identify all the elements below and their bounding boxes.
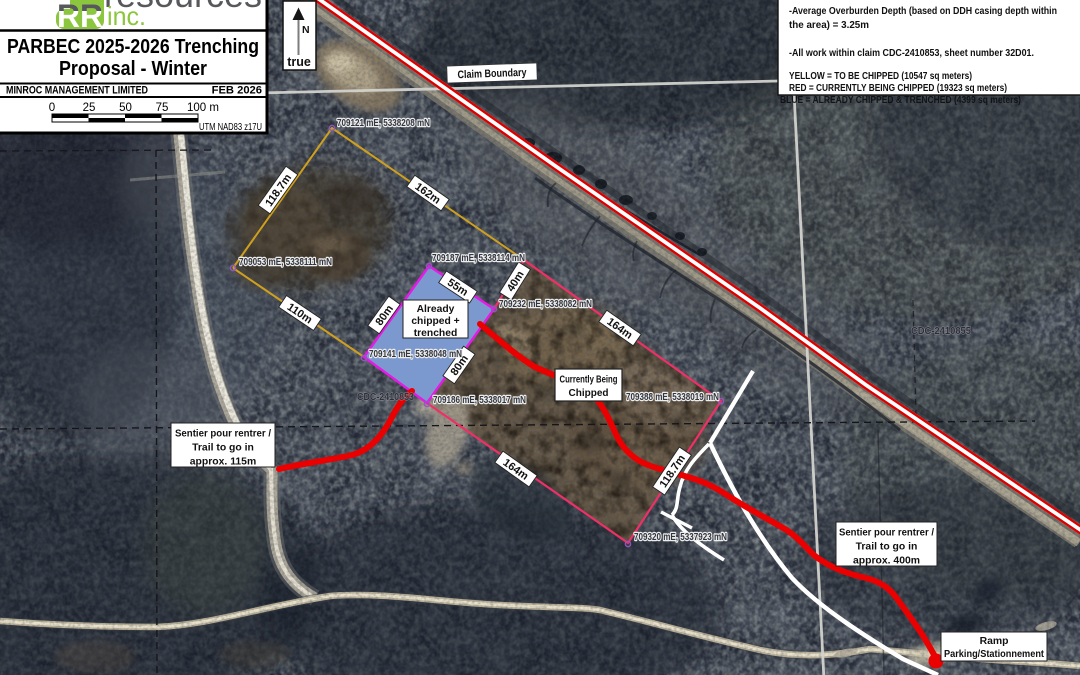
svg-text:CDC-2410855: CDC-2410855 (911, 325, 971, 337)
svg-text:25: 25 (83, 102, 96, 114)
svg-text:-All work within claim CDC-241: -All work within claim CDC-2410853, shee… (789, 48, 1034, 59)
svg-text:Sentier pour rentrer /: Sentier pour rentrer / (839, 528, 934, 539)
svg-text:50: 50 (119, 102, 132, 114)
svg-text:Proposal - Winter: Proposal - Winter (59, 57, 207, 80)
svg-text:N: N (302, 24, 310, 36)
svg-text:the area) = 3.25m: the area) = 3.25m (789, 20, 869, 31)
svg-text:CDC-2410853: CDC-2410853 (357, 391, 414, 403)
svg-text:Sentier pour rentrer /: Sentier pour rentrer / (175, 429, 271, 440)
svg-text:inc.: inc. (107, 1, 146, 31)
svg-text:Already: Already (417, 304, 455, 315)
svg-text:FEB 2026: FEB 2026 (212, 85, 262, 97)
svg-text:Trail to go in: Trail to go in (192, 443, 254, 454)
svg-text:Chipped: Chipped (569, 388, 609, 399)
svg-text:approx. 115m: approx. 115m (190, 457, 256, 468)
svg-text:UTM NAD83 z17U: UTM NAD83 z17U (199, 122, 262, 133)
svg-text:709186 mE, 5338017 mN: 709186 mE, 5338017 mN (433, 395, 526, 406)
svg-text:true: true (287, 55, 311, 69)
svg-text:0: 0 (49, 102, 55, 114)
svg-text:Trail to go in: Trail to go in (856, 542, 918, 553)
svg-text:709187 mE, 5338114 mN: 709187 mE, 5338114 mN (432, 253, 525, 264)
svg-text:709053 mE, 5338111 mN: 709053 mE, 5338111 mN (239, 257, 332, 268)
svg-text:Ramp: Ramp (980, 636, 1009, 647)
svg-text:YELLOW = TO BE CHIPPED (10547: YELLOW = TO BE CHIPPED (10547 sq meters) (789, 71, 972, 82)
svg-text:RED = CURRENTLY BEING CHIPPED: RED = CURRENTLY BEING CHIPPED (19323 sq … (789, 83, 1007, 94)
svg-text:PARBEC 2025-2026 Trenching: PARBEC 2025-2026 Trenching (7, 35, 259, 58)
svg-text:trenched: trenched (414, 328, 458, 339)
svg-text:Parking/Stationnement: Parking/Stationnement (944, 649, 1044, 660)
svg-text:approx. 400m: approx. 400m (853, 556, 920, 567)
svg-text:chipped +: chipped + (411, 316, 459, 327)
svg-text:Claim Boundary: Claim Boundary (457, 67, 527, 81)
svg-text:Currently Being: Currently Being (560, 375, 618, 386)
svg-text:709388 mE, 5338019 mN: 709388 mE, 5338019 mN (626, 392, 719, 403)
svg-text:709121 mE, 5338208 mN: 709121 mE, 5338208 mN (337, 118, 430, 129)
svg-text:BLUE = ALREADY CHIPPED & TRENC: BLUE = ALREADY CHIPPED & TRENCHED (4399 … (780, 95, 1021, 106)
svg-text:709320 mE, 5337923 mN: 709320 mE, 5337923 mN (634, 532, 727, 543)
svg-text:709232 mE, 5338082 mN: 709232 mE, 5338082 mN (499, 299, 592, 310)
svg-text:75: 75 (156, 102, 169, 114)
svg-text:MINROC MANAGEMENT LIMITED: MINROC MANAGEMENT LIMITED (6, 85, 148, 97)
svg-text:100 m: 100 m (187, 102, 219, 114)
svg-text:709141 mE, 5338048 mN: 709141 mE, 5338048 mN (369, 349, 462, 360)
svg-text:-Average Overburden Depth (bas: -Average Overburden Depth (based on DDH … (789, 6, 1057, 17)
